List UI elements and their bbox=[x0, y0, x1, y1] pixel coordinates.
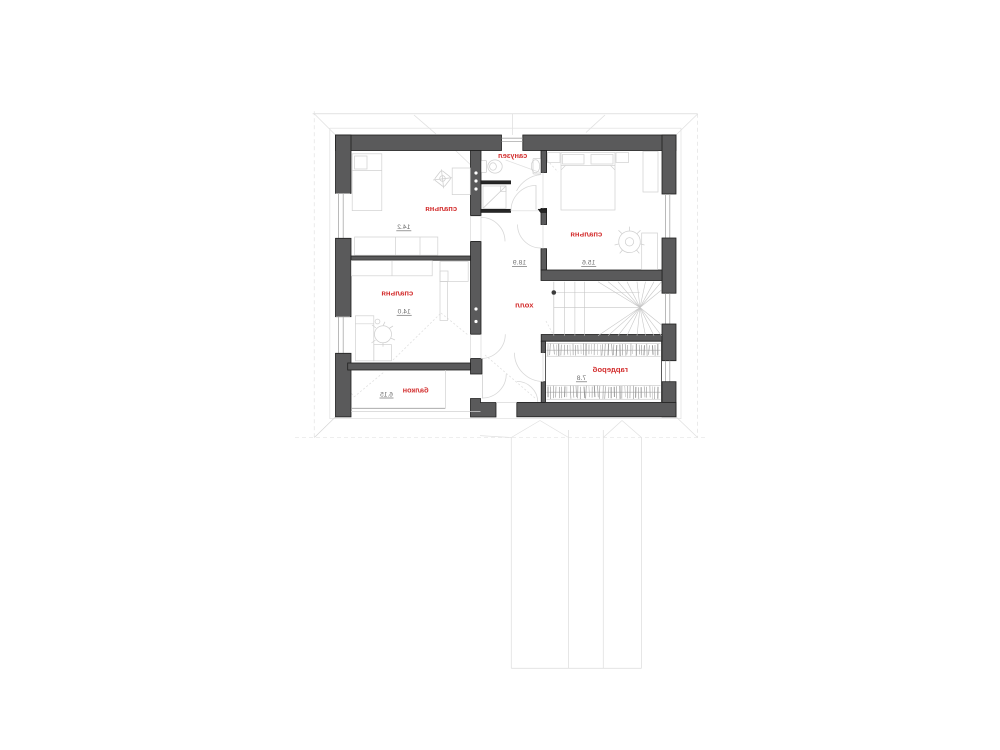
svg-text:15.6: 15.6 bbox=[582, 260, 595, 267]
svg-text:балкон: балкон bbox=[403, 385, 429, 394]
svg-text:спальня: спальня bbox=[570, 229, 602, 238]
svg-text:6.15: 6.15 bbox=[380, 391, 393, 398]
svg-text:14.0: 14.0 bbox=[397, 309, 410, 316]
svg-text:спальня: спальня bbox=[381, 289, 413, 298]
svg-text:14.2: 14.2 bbox=[397, 224, 410, 231]
svg-text:санузел: санузел bbox=[498, 151, 527, 160]
svg-text:7.8: 7.8 bbox=[577, 375, 587, 382]
svg-text:гардероб: гардероб bbox=[592, 365, 628, 374]
svg-text:спальня: спальня bbox=[425, 204, 457, 213]
svg-text:18.9: 18.9 bbox=[513, 260, 526, 267]
svg-text:холл: холл bbox=[515, 301, 533, 310]
